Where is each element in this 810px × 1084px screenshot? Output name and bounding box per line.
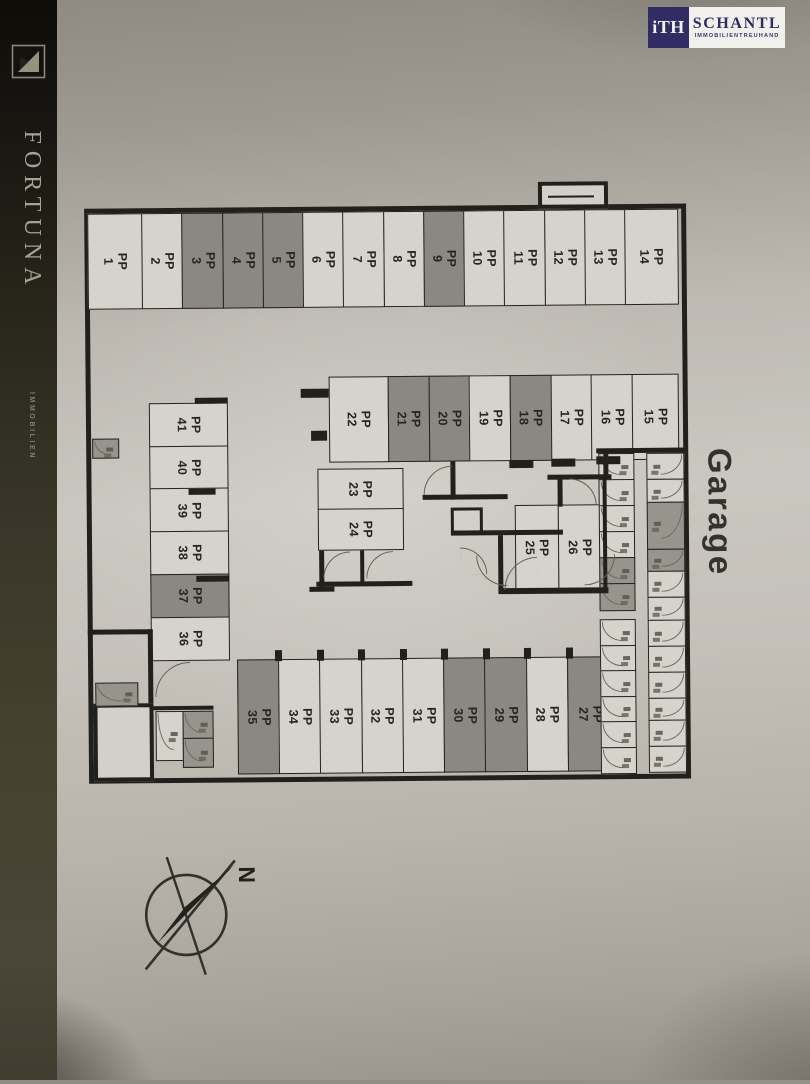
wall	[548, 195, 594, 197]
wall-stub	[301, 389, 329, 398]
parking-spot-pp-22: PP22	[329, 376, 390, 463]
wall-stub	[195, 398, 228, 404]
parking-spot-label: PP3	[189, 252, 217, 270]
storage-room	[601, 721, 637, 748]
schantl-subtitle: IMMOBILIENTREUHAND	[695, 34, 780, 40]
parking-spot-label: PP21	[395, 410, 423, 428]
parking-spot-pp-7: PP7	[343, 211, 386, 307]
fortuna-logo-text: FORTUNA	[15, 80, 45, 342]
storage-room	[647, 570, 685, 598]
service-niche	[95, 682, 138, 706]
parking-spot-label: PP10	[471, 249, 499, 267]
parking-spot-pp-4: PP4	[222, 212, 265, 308]
parking-spot-pp-6: PP6	[302, 212, 345, 308]
parking-spot-label: PP13	[591, 248, 619, 266]
parking-spot-pp-41: PP41	[149, 403, 228, 448]
parking-spot-label: PP28	[534, 705, 562, 723]
parking-spot-pp-17: PP17	[550, 374, 593, 460]
parking-spot-label: PP16	[598, 408, 626, 426]
wall	[423, 494, 508, 500]
parking-spot-label: PP5	[269, 251, 297, 269]
parking-spot-pp-21: PP21	[387, 376, 430, 462]
parking-spot-label: PP32	[369, 707, 397, 725]
storage-room	[600, 645, 636, 672]
parking-spot-label: PP7	[350, 250, 378, 268]
parking-spot-label: PP37	[176, 587, 204, 605]
storage-column-left-lower	[600, 619, 637, 774]
storage-room	[600, 696, 636, 723]
storage-room	[648, 671, 686, 699]
parking-spot-pp-18: PP18	[509, 375, 552, 461]
parking-spot-label: PP29	[492, 706, 520, 724]
garage-floor-plan: PP1PP2PP3PP4PP5PP6PP7PP8PP9PP10PP11PP12P…	[0, 0, 810, 1084]
parking-spot-label: PP17	[558, 409, 586, 427]
wall	[151, 706, 213, 711]
parking-spot-pp-20: PP20	[428, 375, 471, 461]
wall-stub	[483, 648, 490, 659]
parking-spot-label: PP35	[245, 708, 273, 726]
wall-stub	[189, 489, 216, 495]
parking-spot-label: PP31	[410, 706, 438, 724]
parking-spot-pp-24: PP24	[318, 508, 404, 551]
parking-spot-pp-3: PP3	[182, 213, 225, 309]
parking-spot-label: PP23	[346, 480, 374, 498]
parking-spot-pp-14: PP14	[624, 209, 679, 305]
parking-spot-label: PP40	[175, 459, 203, 477]
storage-room	[649, 745, 687, 773]
parking-row-bottom: PP35PP34PP33PP32PP31PP30PP29PP28PP27	[237, 656, 614, 774]
wall-stub	[400, 649, 407, 660]
parking-spot-label: PP6	[310, 251, 338, 269]
wall-stub	[524, 648, 531, 659]
storage-room	[183, 738, 214, 768]
parking-spot-label: PP24	[347, 521, 375, 539]
parking-spot-pp-23: PP23	[317, 468, 403, 511]
parking-spot-label: PP22	[345, 411, 373, 429]
storage-room	[647, 502, 685, 550]
parking-spot-label: PP41	[174, 416, 202, 434]
parking-spot-pp-12: PP12	[544, 209, 587, 305]
parking-spot-label: PP11	[511, 249, 539, 267]
storage-room	[155, 711, 183, 761]
parking-spot-label: PP15	[641, 408, 669, 426]
storage-room	[648, 619, 686, 647]
fortuna-subtitle-text: IMMOBILIEN	[23, 325, 35, 527]
parking-spot-pp-28: PP28	[526, 657, 570, 772]
parking-spot-label: PP34	[286, 708, 314, 726]
parking-spot-pp-2: PP2	[141, 213, 184, 309]
schantl-name: SCHANTL	[693, 16, 782, 32]
parking-row-top: PP1PP2PP3PP4PP5PP6PP7PP8PP9PP10PP11PP12P…	[87, 209, 679, 310]
schantl-wordmark: SCHANTL IMMOBILIENTREUHAND	[689, 7, 785, 48]
compass-n-label: N	[234, 866, 260, 883]
parking-column-left: PP41PP40PP39PP38PP37PP36	[149, 403, 230, 662]
schantl-monogram-icon: iTH	[648, 7, 689, 48]
parking-spot-pp-31: PP31	[402, 658, 446, 773]
wall-stub	[509, 460, 533, 468]
parking-spot-pp-5: PP5	[262, 212, 305, 308]
parking-spot-label: PP14	[638, 248, 666, 266]
parking-spot-pp-36: PP36	[151, 616, 230, 661]
parking-spot-pp-30: PP30	[443, 657, 487, 772]
parking-spot-pp-19: PP19	[469, 375, 512, 461]
parking-spot-pp-8: PP8	[383, 211, 426, 307]
wall-stub	[317, 650, 324, 661]
parking-spot-pp-35: PP35	[237, 659, 281, 774]
wall-niche	[92, 438, 119, 458]
parking-spot-pp-11: PP11	[504, 210, 547, 306]
storage-column-right	[646, 453, 687, 773]
parking-spot-pp-40: PP40	[149, 445, 228, 490]
storage-room	[646, 478, 684, 503]
parking-spot-label: PP30	[451, 706, 479, 724]
parking-spot-label: PP18	[517, 409, 545, 427]
storage-room	[600, 619, 636, 646]
parking-spot-pp-13: PP13	[584, 209, 627, 305]
parking-spot-label: PP9	[430, 250, 458, 268]
wall-stub	[566, 648, 573, 659]
parking-spot-label: PP19	[476, 409, 504, 427]
storage-room	[646, 453, 684, 481]
parking-spot-label: PP38	[176, 544, 204, 562]
wall-stub	[196, 576, 229, 582]
parking-spot-pp-10: PP10	[463, 210, 506, 306]
parking-spot-label: PP25	[523, 538, 551, 556]
wall	[360, 550, 364, 583]
stair-room	[93, 703, 154, 782]
schantl-logo: iTH SCHANTL IMMOBILIENTREUHAND	[648, 7, 785, 48]
parking-spot-label: PP1	[101, 253, 129, 271]
storage-room	[648, 645, 686, 673]
wall	[88, 629, 152, 635]
storage-room	[649, 719, 687, 747]
fortuna-brand-strip: FORTUNA IMMOBILIEN	[0, 0, 57, 1080]
parking-block-23-24: PP23PP24	[317, 468, 404, 551]
parking-spot-pp-1: PP1	[87, 213, 144, 309]
parking-spot-pp-34: PP34	[278, 659, 322, 774]
wall	[451, 530, 563, 536]
wall-stub	[358, 649, 365, 660]
storage-room	[600, 670, 636, 697]
wall-stub	[311, 431, 327, 441]
compass-north-icon: N	[131, 844, 262, 980]
wall-stub	[441, 649, 448, 660]
wall	[557, 477, 562, 507]
storage-room	[647, 548, 685, 572]
parking-spot-pp-38: PP38	[150, 531, 229, 576]
parking-spot-label: PP8	[390, 250, 418, 268]
parking-spot-label: PP26	[566, 538, 594, 556]
parking-spot-label: PP20	[435, 410, 463, 428]
parking-spot-label: PP39	[175, 502, 203, 520]
fortuna-triangle-icon	[11, 44, 46, 79]
parking-spot-label: PP12	[551, 249, 579, 267]
parking-spot-pp-33: PP33	[320, 658, 364, 773]
parking-spot-pp-32: PP32	[361, 658, 405, 773]
wall-stub	[275, 650, 282, 661]
wall	[596, 448, 684, 454]
storage-room	[182, 711, 213, 739]
garage-area-label: Garage	[700, 421, 740, 603]
storage-room	[601, 747, 637, 774]
wall	[309, 587, 334, 592]
parking-spot-label: PP36	[176, 630, 204, 648]
parking-spot-label: PP4	[229, 252, 257, 270]
parking-spot-label: PP2	[149, 252, 177, 270]
parking-spot-pp-9: PP9	[423, 210, 466, 306]
wall-stub	[551, 459, 575, 467]
parking-spot-pp-29: PP29	[484, 657, 528, 772]
storage-room	[648, 697, 686, 721]
wall-stub	[596, 456, 620, 464]
storage-room	[648, 596, 686, 621]
parking-spot-label: PP33	[327, 707, 355, 725]
